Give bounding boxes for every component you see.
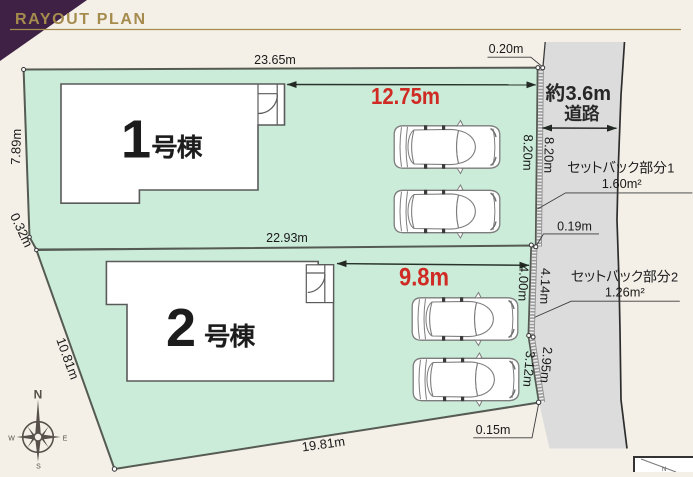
svg-text:8.20m: 8.20m <box>520 134 536 170</box>
svg-text:RAYOUT PLAN: RAYOUT PLAN <box>15 11 147 28</box>
svg-text:0.15m: 0.15m <box>476 423 511 437</box>
svg-text:12.75m: 12.75m <box>371 83 440 109</box>
svg-text:23.65m: 23.65m <box>254 53 296 67</box>
svg-text:1.60m²: 1.60m² <box>602 176 643 191</box>
svg-text:S: S <box>36 464 41 471</box>
svg-text:W: W <box>8 436 15 443</box>
svg-text:N: N <box>662 467 666 472</box>
svg-text:22.93m: 22.93m <box>266 231 308 245</box>
svg-text:8.20m: 8.20m <box>541 137 557 173</box>
svg-text:4.00m: 4.00m <box>515 265 531 302</box>
svg-text:3.6m: 3.6m <box>566 83 612 105</box>
svg-text:1: 1 <box>121 110 151 170</box>
svg-text:1.26m²: 1.26m² <box>605 285 646 300</box>
svg-text:1: 1 <box>667 161 674 176</box>
svg-text:E: E <box>63 436 68 443</box>
svg-text:2: 2 <box>166 298 196 358</box>
svg-text:9.8m: 9.8m <box>399 264 449 292</box>
svg-text:2: 2 <box>671 269 678 284</box>
svg-text:0.19m: 0.19m <box>557 220 592 234</box>
svg-text:7.89m: 7.89m <box>8 129 24 166</box>
svg-text:3.12m: 3.12m <box>520 350 538 387</box>
svg-text:N: N <box>34 388 43 402</box>
svg-text:4.14m: 4.14m <box>537 268 553 305</box>
svg-text:2.95m: 2.95m <box>537 346 555 383</box>
svg-text:0.20m: 0.20m <box>489 42 524 56</box>
